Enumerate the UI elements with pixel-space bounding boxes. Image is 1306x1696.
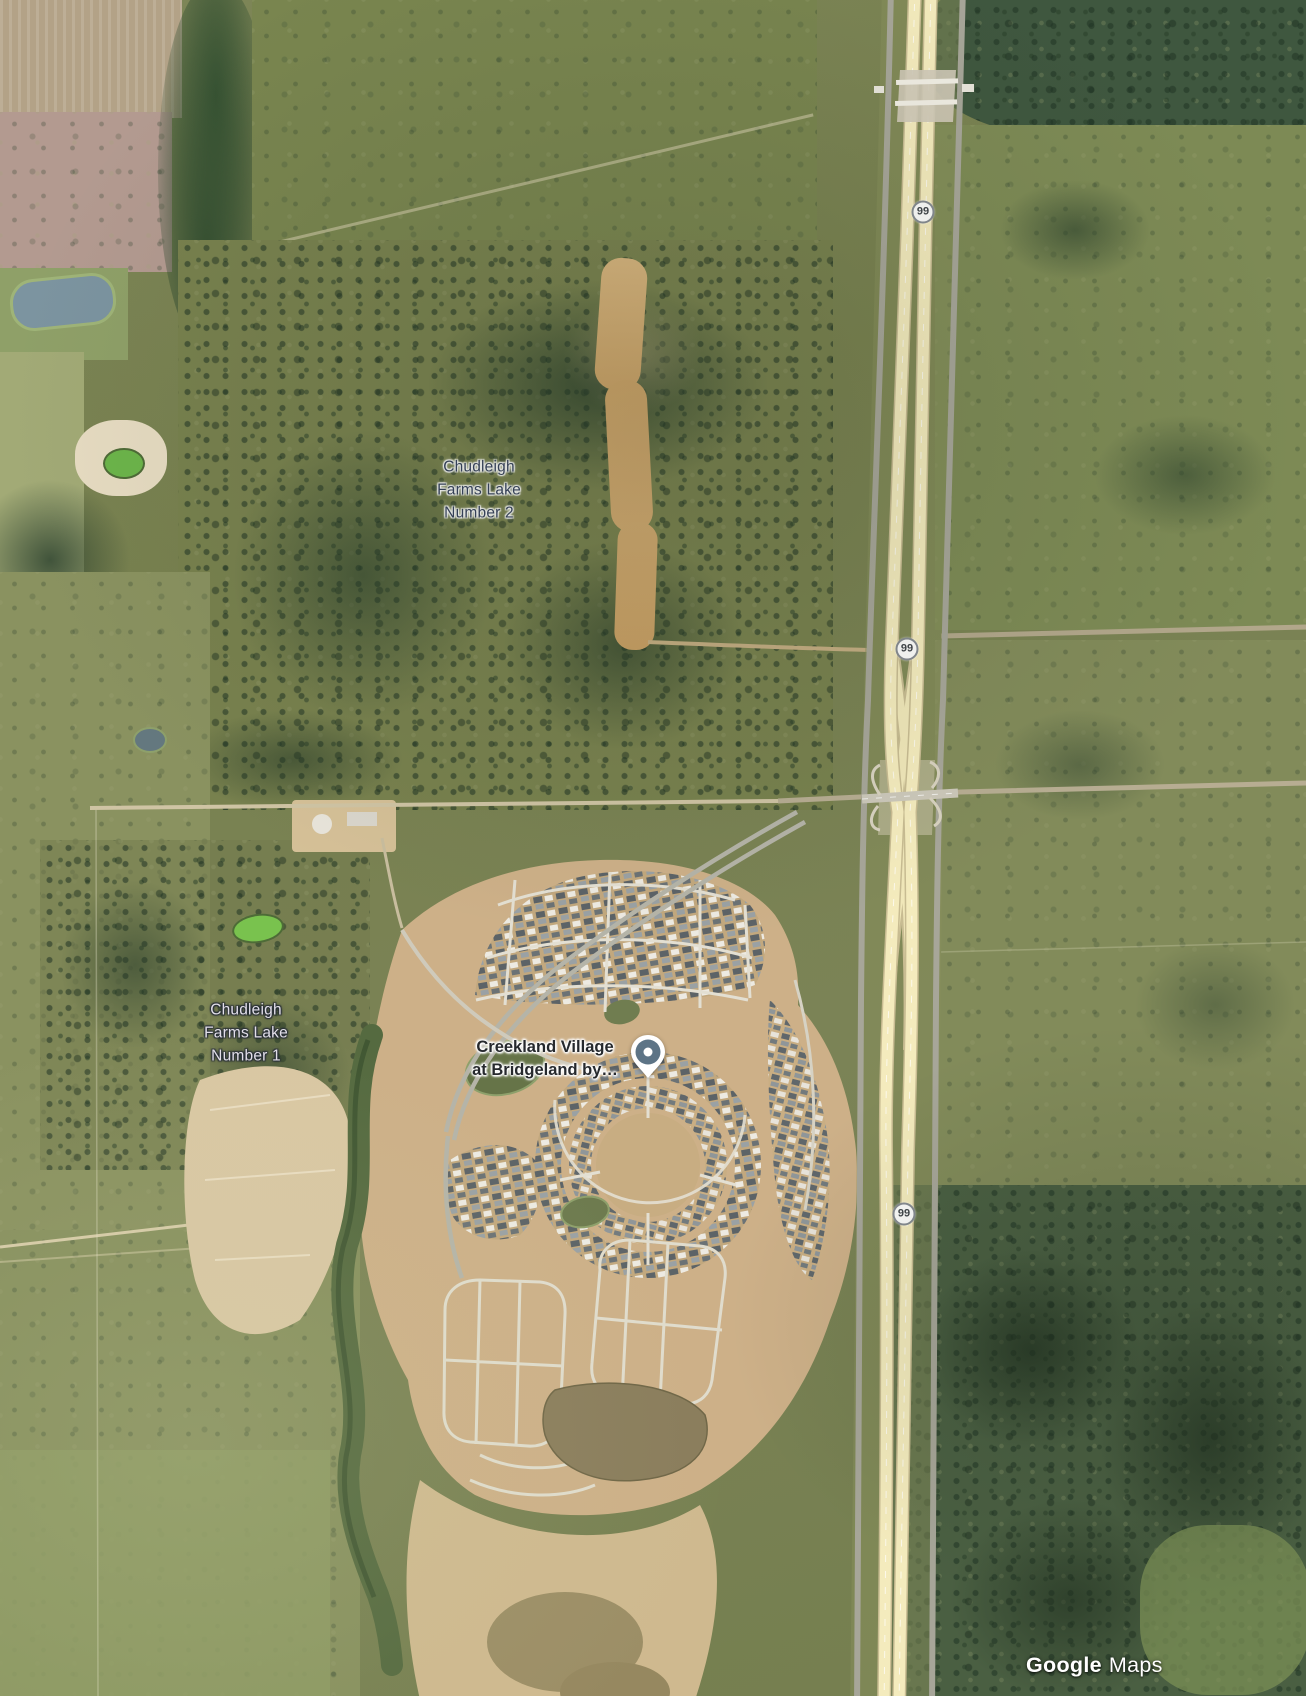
- map-features-overlay: [0, 0, 1306, 1696]
- crossing-roads: [90, 627, 1306, 808]
- map-canvas[interactable]: Chudleigh Farms Lake Number 2 Chudleigh …: [0, 0, 1306, 1696]
- route-shield-99-top: 99: [912, 201, 935, 224]
- highway-99: [857, 0, 974, 1696]
- route-shield-99-bottom: 99: [893, 1203, 916, 1226]
- google-maps-watermark[interactable]: Google Maps: [1026, 1653, 1163, 1678]
- poi-label-creekland-village[interactable]: Creekland Village at Bridgeland by…: [472, 1036, 618, 1082]
- water-label-chudleigh-farms-lake-2: Chudleigh Farms Lake Number 2: [437, 456, 521, 525]
- maps-logo-text: Maps: [1109, 1653, 1163, 1678]
- place-pin-icon[interactable]: [628, 1033, 668, 1081]
- creekland-development: [184, 812, 857, 1696]
- route-shield-99-middle: 99: [896, 638, 919, 661]
- water-label-chudleigh-farms-lake-1: Chudleigh Farms Lake Number 1: [204, 999, 288, 1068]
- google-logo-text: Google: [1026, 1653, 1102, 1678]
